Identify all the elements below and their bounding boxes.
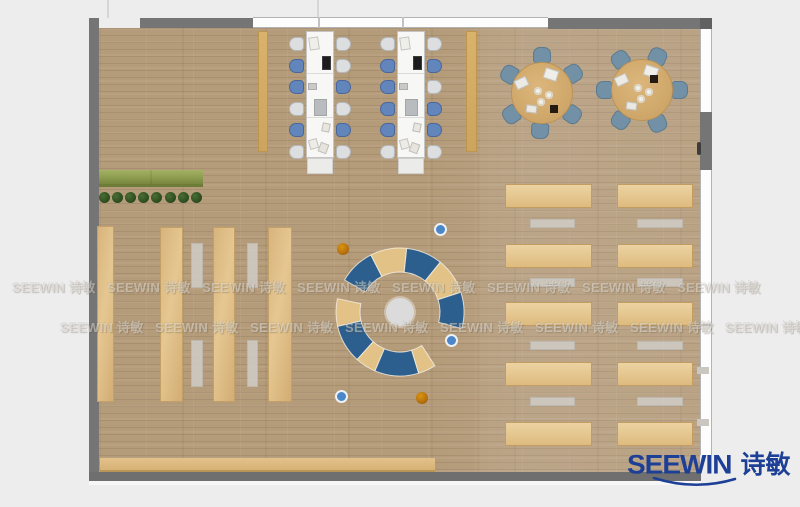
study-desk-row — [505, 422, 592, 446]
plant — [165, 192, 176, 203]
stool-blue — [335, 390, 348, 403]
reading-circle-arc — [425, 262, 461, 299]
chair — [336, 59, 351, 73]
reading-circle-arc — [345, 255, 382, 292]
reading-circle-arc — [357, 342, 384, 371]
plant — [151, 192, 162, 203]
study-desk-row — [617, 184, 693, 208]
table-item — [322, 56, 331, 70]
desk-runner — [530, 219, 575, 228]
round-table — [611, 59, 673, 121]
table-item — [308, 36, 320, 50]
table-item — [405, 99, 418, 116]
study-desk-row — [617, 422, 693, 446]
stool-blue — [434, 223, 447, 236]
reading-circle-arc — [338, 321, 374, 360]
chair — [289, 145, 304, 159]
chair — [427, 59, 442, 73]
table-seam — [307, 73, 333, 74]
chair — [427, 145, 442, 159]
study-desk-row — [617, 302, 693, 326]
floorplan-canvas: SEEWIN 诗敏SEEWIN 诗敏SEEWIN 诗敏SEEWIN 诗敏SEEW… — [0, 0, 800, 507]
table-seam — [398, 73, 424, 74]
plant — [138, 192, 149, 203]
reading-circle-arc — [412, 346, 435, 374]
reading-circle-arc — [375, 349, 419, 376]
bookshelf — [268, 227, 292, 402]
plate — [537, 98, 545, 106]
chair — [289, 80, 304, 94]
chair — [336, 123, 351, 137]
plate — [534, 87, 542, 95]
chair — [380, 102, 395, 116]
chair — [289, 102, 304, 116]
plant — [112, 192, 123, 203]
aisle-runner — [247, 243, 258, 288]
desk-runner — [530, 341, 575, 350]
bottom-counter — [100, 458, 435, 472]
bookshelf — [160, 227, 183, 402]
plate — [634, 84, 642, 92]
chair — [336, 102, 351, 116]
desk-runner — [637, 341, 683, 350]
stool-orange — [337, 243, 349, 255]
brand-logo-cn: 诗敏 — [740, 451, 790, 479]
aisle-runner — [191, 243, 203, 288]
chair — [380, 80, 395, 94]
table-seam — [307, 117, 333, 118]
table-item — [308, 83, 317, 90]
stool-orange — [416, 392, 428, 404]
stool-blue — [445, 334, 458, 347]
chair — [427, 123, 442, 137]
standing-bench — [466, 31, 477, 152]
reading-table-footer — [307, 158, 333, 174]
plant — [125, 192, 136, 203]
table-item — [399, 83, 408, 90]
chair — [380, 123, 395, 137]
round-table-chair — [531, 122, 550, 139]
furniture-layer — [0, 0, 800, 507]
chair — [336, 80, 351, 94]
table-item — [399, 36, 411, 50]
chair — [336, 37, 351, 51]
study-desk-row — [505, 184, 592, 208]
table-item — [413, 56, 422, 70]
plate — [645, 88, 653, 96]
table-seam — [398, 117, 424, 118]
desk-runner — [637, 397, 683, 406]
study-desk-row — [505, 302, 592, 326]
brand-logo-swoosh-icon — [651, 477, 739, 489]
brand-logo-text: SEEWIN — [627, 452, 731, 479]
table-item — [525, 104, 537, 113]
plant — [99, 192, 110, 203]
plate — [637, 95, 645, 103]
round-table — [511, 62, 573, 124]
chair — [380, 145, 395, 159]
reading-table-footer — [398, 158, 424, 174]
plate — [545, 91, 553, 99]
study-desk-row — [617, 362, 693, 386]
table-item — [625, 101, 637, 110]
plant — [191, 192, 202, 203]
brand-logo: SEEWIN 诗敏 — [627, 451, 790, 479]
desk-runner — [530, 397, 575, 406]
aisle-runner — [191, 340, 203, 387]
reading-circle-center — [386, 298, 414, 326]
table-item — [314, 99, 327, 116]
planter-bench — [99, 170, 203, 187]
desk-runner — [637, 278, 683, 287]
study-desk-row — [617, 244, 693, 268]
round-table-chair — [672, 81, 688, 99]
bookshelf — [213, 227, 235, 402]
chair — [427, 102, 442, 116]
desk-runner — [530, 278, 575, 287]
study-desk-row — [505, 362, 592, 386]
study-desk-row — [505, 244, 592, 268]
reading-circle-arc — [404, 248, 440, 281]
standing-bench — [258, 31, 268, 152]
chair — [380, 37, 395, 51]
round-table-chair — [596, 81, 612, 99]
chair — [289, 59, 304, 73]
aisle-runner — [247, 340, 258, 387]
table-item — [550, 105, 558, 113]
desk-runner — [637, 219, 683, 228]
chair — [427, 80, 442, 94]
plant — [178, 192, 189, 203]
table-item — [650, 75, 658, 83]
chair — [336, 145, 351, 159]
reading-circle-arc — [438, 292, 464, 328]
bookshelf — [97, 226, 114, 402]
chair — [427, 37, 442, 51]
chair — [289, 123, 304, 137]
chair — [380, 59, 395, 73]
round-table-chair — [533, 47, 551, 63]
reading-circle-arc — [336, 299, 361, 327]
chair — [289, 37, 304, 51]
reading-circle-arc — [371, 248, 407, 276]
